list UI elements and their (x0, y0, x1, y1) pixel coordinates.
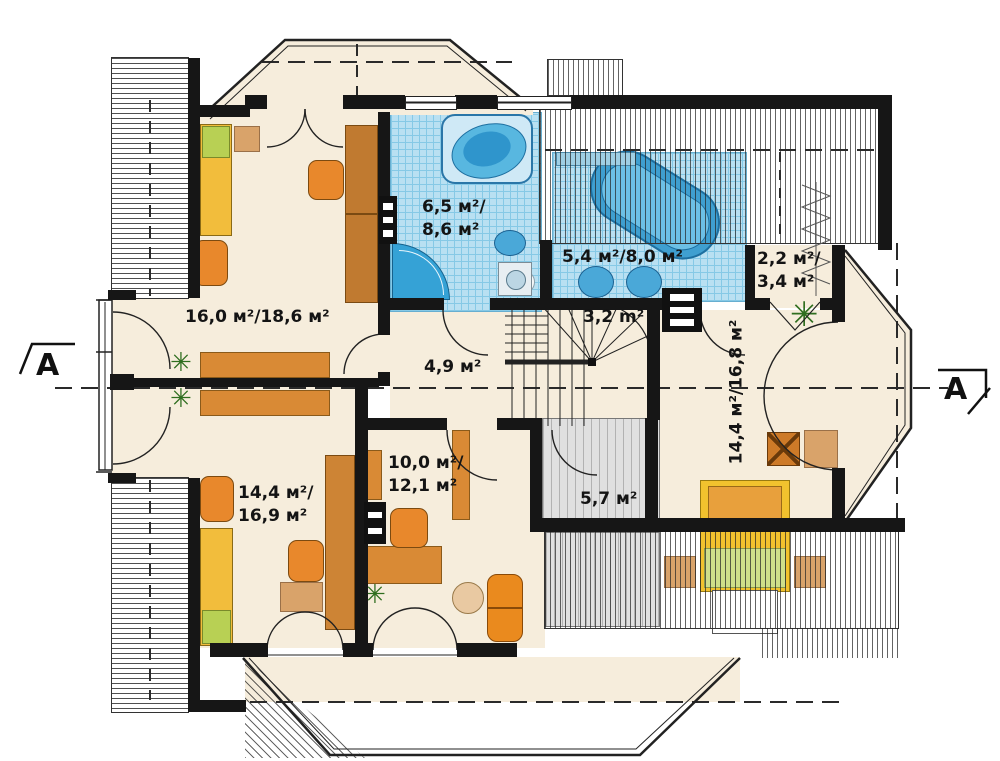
wall-bottom-bl-3 (457, 643, 517, 657)
wall-bathsmall-bottom-1 (378, 298, 444, 310)
section-marker-a-left: A (36, 348, 59, 383)
media-cabinet (364, 502, 386, 544)
wall-void-left (530, 418, 542, 520)
wall-right-bay-bottom (832, 468, 845, 532)
label-bathroom-small-1: 6,5 м²/ (422, 196, 486, 219)
wall-right-bay-top (832, 245, 845, 322)
wall-bottom-bl-1 (210, 643, 268, 657)
wall-left-lower (188, 478, 200, 712)
label-bedroom-right: 14,4 м²/16,8 м² (726, 320, 749, 465)
wall-right-upper (878, 95, 892, 250)
label-void: 5,7 м² (580, 488, 637, 511)
label-study-2: 12,1 м² (388, 475, 463, 498)
label-staircase: 3,2 m² (583, 306, 644, 329)
floor-plan: ✳ ✳ ✳ ✳ (0, 0, 1000, 761)
label-study-1: 10,0 м²/ (388, 452, 463, 475)
radiator-fin (383, 217, 394, 224)
wall-study-top-2 (497, 418, 542, 430)
wall-bottomleft-h (188, 700, 246, 712)
wall-topleft-h (188, 105, 250, 117)
wall-void-right (645, 418, 658, 520)
cabinet-shelf (368, 512, 381, 518)
wall-bathsmall-left-2 (378, 372, 390, 386)
label-bedroom-bottom-left-1: 14,4 м²/ (238, 482, 313, 505)
flue-opening (670, 307, 694, 313)
chimney-flue (662, 288, 702, 332)
wall-closet-bottom-1 (752, 298, 770, 310)
label-closet-1: 2,2 м²/ (757, 248, 821, 271)
dormer-pier-top (108, 290, 136, 300)
cabinet-shelf (368, 528, 381, 534)
wall-stairs-right (647, 310, 660, 420)
wall-partition-left (133, 378, 379, 387)
radiator-bathroom (379, 196, 397, 244)
wall-top-2 (343, 95, 405, 109)
label-bedroom-bottom-left-2: 16,9 м² (238, 505, 313, 528)
flue-opening (670, 319, 694, 325)
dormer-pier-bottom (108, 473, 136, 483)
section-marker-a-right: A (944, 372, 967, 407)
label-bedroom-top-left: 16,0 м²/18,6 м² (185, 306, 330, 329)
window-top-1 (405, 96, 457, 110)
wall-bottom-bl-2 (343, 643, 373, 657)
radiator-fin (383, 203, 394, 210)
dormer-pier-mid (110, 374, 134, 390)
label-closet-2: 3,4 м² (757, 271, 821, 294)
wall-top-3 (455, 95, 497, 109)
flue-opening (670, 294, 694, 300)
label-hall: 4,9 м² (424, 356, 481, 379)
label-bathroom-small-2: 8,6 м² (422, 219, 486, 242)
wall-left-upper (188, 58, 200, 298)
window-top-2 (497, 96, 572, 110)
wall-bathsmall-bottom-2 (490, 298, 542, 310)
label-bathroom-large: 5,4 м²/8,0 м² (562, 246, 683, 269)
radiator-fin (383, 230, 394, 237)
wall-bottom-right-main (530, 518, 905, 532)
wall-study-top-1 (368, 418, 447, 430)
wall-top-4 (570, 95, 890, 109)
